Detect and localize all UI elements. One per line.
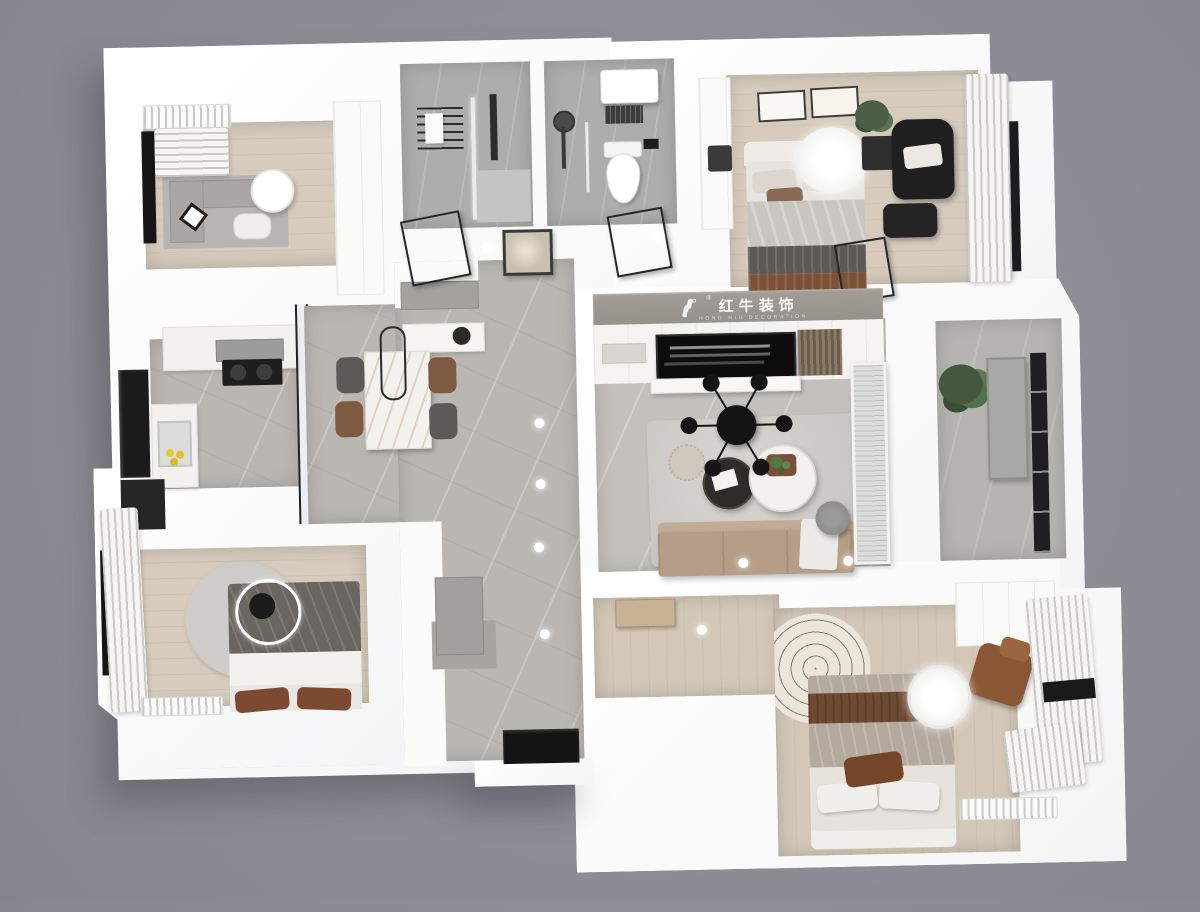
bath-vent [605,105,643,124]
tv-niche [602,343,646,364]
kitchen-sink [157,421,192,468]
watermark-text-en: HONG NIU DECORATION [699,314,808,322]
wood-slat-panel [798,329,843,376]
wall-art-frame-2 [810,86,860,119]
chandelier-hub [716,405,757,446]
shower-pipe-2 [561,127,566,169]
dining-chair-2 [335,401,364,438]
floor-plan-render: ® 红牛装饰 HONG NIU DECORATION [0,0,1200,912]
pendant-light [379,326,407,401]
ottoman [883,203,938,238]
wall-art-frame-1 [757,90,807,123]
dining-chair-3 [428,357,457,394]
water-heater [600,69,659,104]
shower-tray [476,169,531,222]
study-radiator [143,104,231,130]
desk-chair [233,213,272,240]
bathroom2-door [607,207,673,278]
bedroom3-curtain-lower [1003,722,1086,793]
master-curtain [964,73,1012,282]
bedroom3-pillow-white-2 [879,780,940,811]
sideboard [402,322,485,353]
toilet-paper-holder [643,139,658,149]
bedroom3-wood-door [615,598,676,627]
glass-screen [850,362,890,565]
bedroom2-radiator [141,696,223,717]
refrigerator [118,369,150,478]
study-wardrobe [333,101,385,296]
towel [425,113,444,143]
armchair-cushion [903,143,943,170]
master-nightstand [708,145,733,171]
entry-door [503,729,580,765]
study-blinds [154,128,229,178]
bedroom3-radiator [959,796,1057,820]
bathroom1-door [400,210,472,286]
bedroom3-headboard [811,829,956,850]
watermark-text-cn: 红牛装饰 [718,298,798,315]
registered-mark: ® [706,295,711,302]
dining-chair-1 [336,357,365,394]
watermark-band: ® 红牛装饰 HONG NIU DECORATION [593,288,884,325]
abstract-art-frame [502,229,553,276]
balcony-storage-panel [986,357,1029,480]
bedroom2-pillow-2 [297,687,352,711]
bedroom2-door [435,576,485,655]
shower-column-1 [490,94,498,160]
bedroom2-bed-fold [229,651,362,688]
dining-chair-4 [429,403,458,440]
sputnik-chandelier [679,368,793,482]
bull-icon [677,296,699,318]
